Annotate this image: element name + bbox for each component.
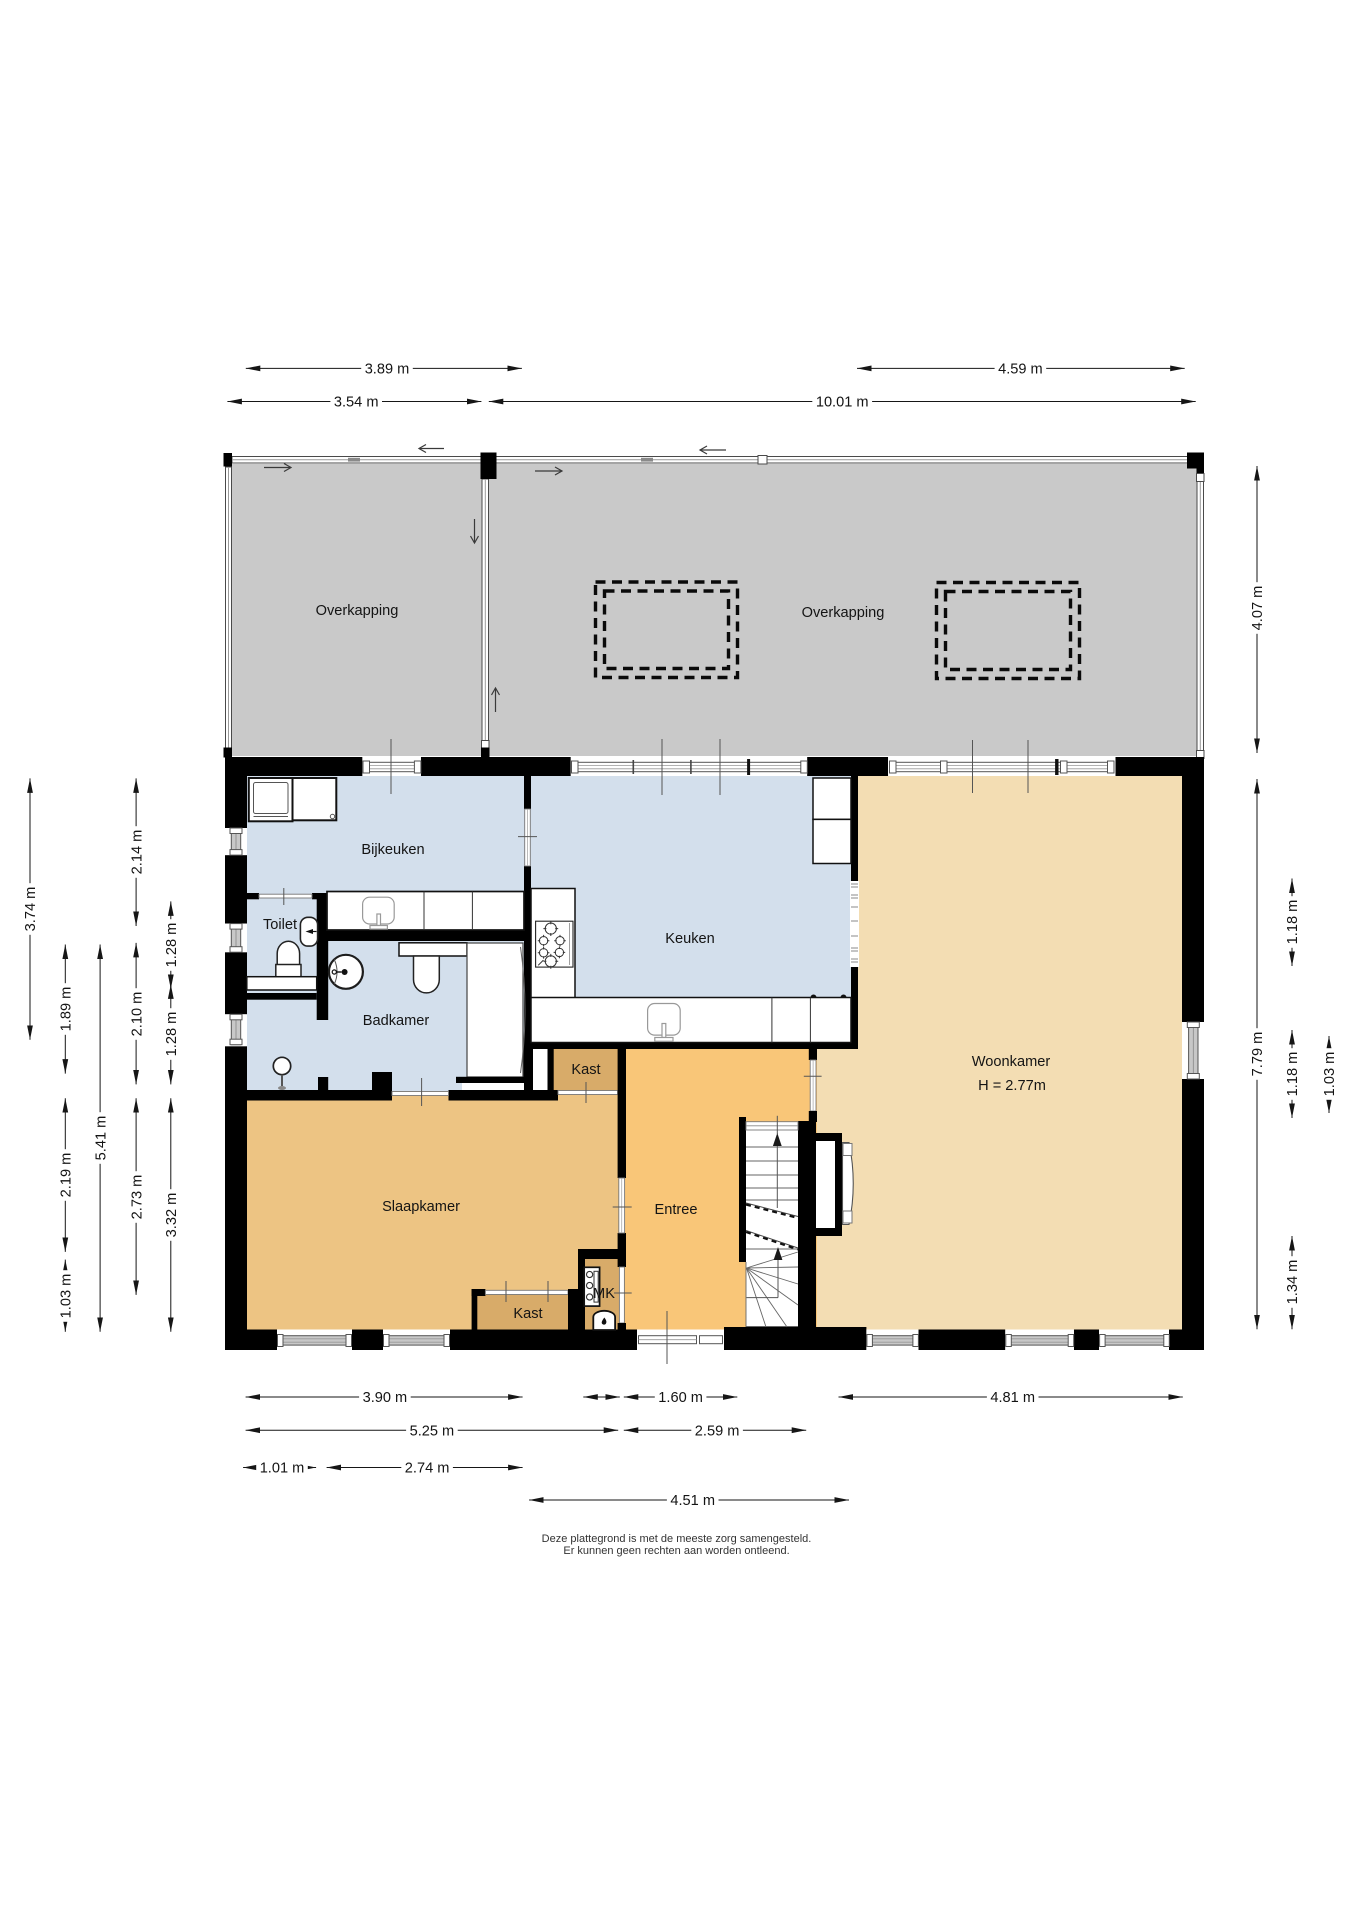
svg-text:H = 2.77m: H = 2.77m — [978, 1078, 1046, 1094]
svg-text:Overkapping: Overkapping — [316, 603, 399, 619]
svg-text:2.73 m: 2.73 m — [129, 1175, 145, 1220]
svg-text:4.81 m: 4.81 m — [990, 1390, 1035, 1406]
svg-text:Keuken: Keuken — [665, 931, 715, 947]
svg-text:Slaapkamer: Slaapkamer — [382, 1199, 460, 1215]
svg-text:Kast: Kast — [513, 1306, 542, 1322]
svg-text:1.03 m: 1.03 m — [58, 1274, 74, 1319]
svg-text:1.28 m: 1.28 m — [164, 1012, 180, 1057]
svg-text:3.32 m: 3.32 m — [164, 1193, 180, 1238]
svg-text:Toilet: Toilet — [263, 917, 297, 933]
svg-text:1.34 m: 1.34 m — [1285, 1260, 1301, 1305]
svg-text:Entree: Entree — [655, 1202, 698, 1218]
svg-text:Kast: Kast — [571, 1062, 600, 1078]
svg-text:Badkamer: Badkamer — [363, 1013, 430, 1029]
svg-text:3.74 m: 3.74 m — [23, 887, 39, 932]
svg-text:Overkapping: Overkapping — [802, 605, 885, 621]
svg-text:1.89 m: 1.89 m — [59, 987, 75, 1032]
svg-text:MK: MK — [593, 1286, 615, 1302]
svg-text:3.54 m: 3.54 m — [334, 395, 379, 411]
svg-text:2.10 m: 2.10 m — [129, 992, 145, 1037]
svg-text:2.74 m: 2.74 m — [405, 1461, 450, 1477]
svg-text:Er kunnen geen rechten aan wor: Er kunnen geen rechten aan worden ontlee… — [563, 1545, 789, 1557]
svg-text:3.89 m: 3.89 m — [365, 362, 410, 378]
svg-text:2.19 m: 2.19 m — [58, 1153, 74, 1198]
svg-text:4.59 m: 4.59 m — [998, 362, 1043, 378]
svg-text:1.60 m: 1.60 m — [658, 1390, 703, 1406]
svg-text:1.01 m: 1.01 m — [260, 1461, 305, 1477]
svg-text:1.18 m: 1.18 m — [1285, 900, 1301, 945]
svg-text:Woonkamer: Woonkamer — [972, 1054, 1051, 1070]
svg-text:3.90 m: 3.90 m — [363, 1390, 408, 1406]
svg-text:10.01 m: 10.01 m — [816, 395, 869, 411]
svg-text:2.59 m: 2.59 m — [695, 1423, 740, 1439]
svg-text:1.18 m: 1.18 m — [1285, 1052, 1301, 1097]
svg-text:Bijkeuken: Bijkeuken — [361, 842, 424, 858]
svg-text:5.41 m: 5.41 m — [93, 1116, 109, 1161]
svg-text:7.79 m: 7.79 m — [1250, 1032, 1266, 1077]
svg-text:Deze plattegrond is met de mee: Deze plattegrond is met de meeste zorg s… — [542, 1533, 812, 1545]
svg-text:4.51 m: 4.51 m — [670, 1493, 715, 1509]
svg-text:1.03 m: 1.03 m — [1322, 1052, 1338, 1097]
svg-text:5.25 m: 5.25 m — [410, 1423, 455, 1439]
svg-text:1.28 m: 1.28 m — [164, 923, 180, 968]
svg-text:2.14 m: 2.14 m — [129, 830, 145, 875]
svg-text:4.07 m: 4.07 m — [1250, 586, 1266, 631]
